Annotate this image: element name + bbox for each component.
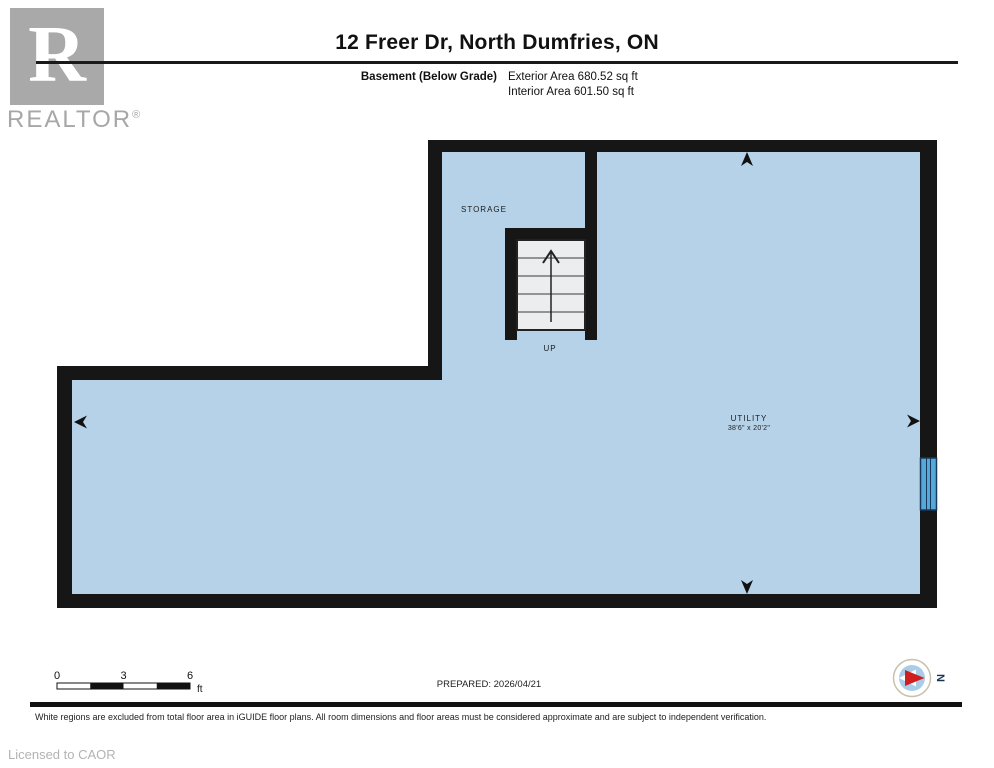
scale-bar-segment bbox=[157, 683, 190, 689]
floorplan-page: R REALTOR® 12 Freer Dr, North Dumfries, … bbox=[0, 0, 994, 768]
wall-left-upper bbox=[428, 140, 442, 380]
wall-right bbox=[920, 140, 937, 608]
scale-unit-label: ft bbox=[197, 684, 203, 695]
disclaimer-text: White regions are excluded from total fl… bbox=[35, 712, 766, 722]
brand-word: REALTOR bbox=[7, 106, 132, 133]
compass-icon: N bbox=[894, 660, 947, 697]
wall-top bbox=[428, 140, 937, 152]
realtor-brand-text: REALTOR® bbox=[7, 106, 140, 134]
wall-bottom bbox=[57, 594, 937, 608]
footer-divider-bar bbox=[30, 702, 962, 707]
wall-lower-top bbox=[57, 366, 442, 380]
utility-room-label: UTILITY bbox=[731, 414, 768, 423]
wall-storage-divider bbox=[585, 152, 597, 340]
prepared-date-text: PREPARED: 2026/04/21 bbox=[437, 679, 541, 690]
stair-up-label: UP bbox=[543, 344, 556, 353]
registered-trademark-icon: ® bbox=[132, 109, 140, 121]
floorplan-canvas: STORAGE UP UTILITY 38'6" x 20'2" 0 3 6 f… bbox=[0, 0, 994, 768]
scale-bar: 0 3 6 ft bbox=[54, 670, 203, 695]
license-text: Licensed to CAOR bbox=[8, 747, 116, 762]
scale-tick-3: 3 bbox=[120, 670, 126, 682]
scale-tick-0: 0 bbox=[54, 670, 60, 682]
scale-bar-segment bbox=[90, 683, 123, 689]
wall-left-lower bbox=[57, 366, 72, 608]
wall-stair-left bbox=[505, 228, 517, 340]
window-glass bbox=[921, 458, 937, 510]
realtor-logo: R bbox=[10, 8, 104, 105]
realtor-logo-letter: R bbox=[28, 15, 86, 95]
staircase bbox=[517, 240, 585, 330]
header-divider-line bbox=[36, 61, 958, 64]
compass-north-letter: N bbox=[934, 674, 946, 682]
utility-room-dimensions: 38'6" x 20'2" bbox=[728, 425, 771, 432]
window bbox=[921, 458, 937, 510]
storage-room-label: STORAGE bbox=[461, 205, 507, 214]
wall-stair-top bbox=[505, 228, 597, 240]
scale-tick-6: 6 bbox=[187, 670, 193, 682]
